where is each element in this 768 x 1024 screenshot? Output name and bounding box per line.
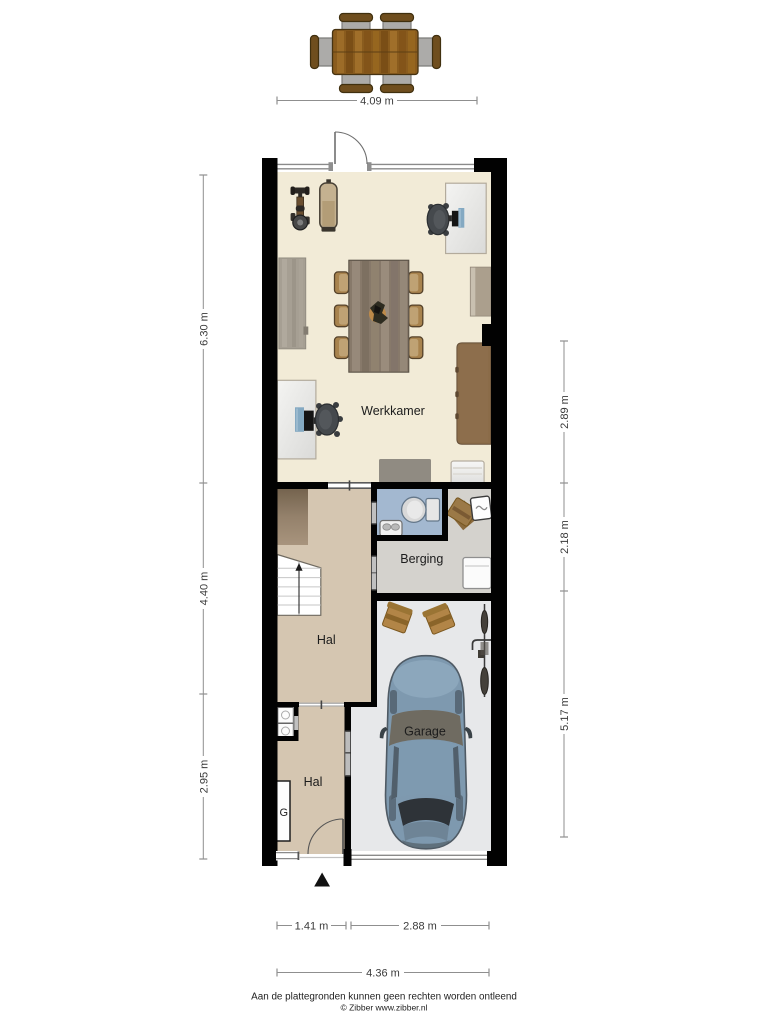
- svg-text:2.88 m: 2.88 m: [403, 921, 437, 933]
- svg-text:Berging: Berging: [400, 552, 443, 566]
- svg-text:Aan de plattegronden kunnen ge: Aan de plattegronden kunnen geen rechten…: [251, 992, 517, 1003]
- svg-text:Hal: Hal: [317, 633, 336, 647]
- svg-text:4.40 m: 4.40 m: [198, 572, 210, 606]
- svg-text:5.17 m: 5.17 m: [559, 697, 571, 731]
- svg-text:G: G: [280, 807, 289, 819]
- svg-text:1.41 m: 1.41 m: [295, 921, 329, 933]
- svg-text:Werkkamer: Werkkamer: [361, 404, 425, 418]
- svg-text:6.30 m: 6.30 m: [198, 312, 210, 346]
- svg-text:2.95 m: 2.95 m: [198, 760, 210, 794]
- svg-text:Hal: Hal: [304, 775, 323, 789]
- svg-text:2.18 m: 2.18 m: [559, 520, 571, 554]
- svg-text:© Zibber www.zibber.nl: © Zibber www.zibber.nl: [340, 1003, 427, 1013]
- svg-text:Garage: Garage: [404, 725, 446, 739]
- svg-text:4.09 m: 4.09 m: [360, 96, 394, 108]
- svg-text:4.36 m: 4.36 m: [366, 968, 400, 980]
- svg-text:2.89 m: 2.89 m: [559, 395, 571, 429]
